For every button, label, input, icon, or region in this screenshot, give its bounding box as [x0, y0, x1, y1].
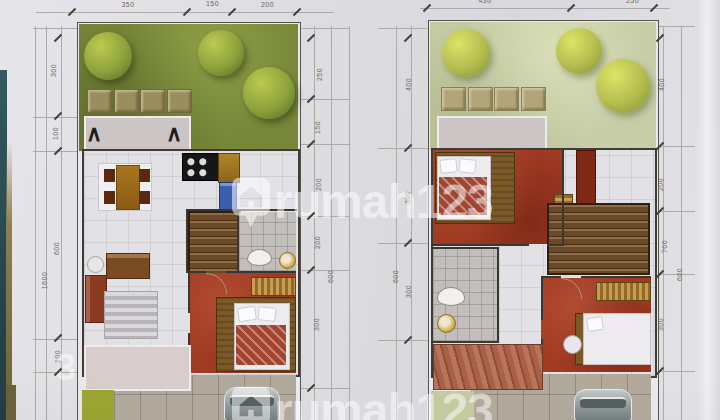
- wall: [188, 271, 206, 273]
- pillow: [586, 316, 604, 332]
- tree: [556, 28, 602, 74]
- lawn-patch: [82, 390, 114, 420]
- wall: [226, 271, 296, 273]
- dimension-label: 600: [327, 264, 336, 290]
- dimension-label: 700: [661, 234, 670, 260]
- desk: [596, 282, 651, 301]
- wall: [188, 271, 190, 313]
- wall: [186, 209, 188, 273]
- dimension-label: 430: [455, 0, 515, 4]
- dimension-label: 150: [185, 0, 240, 7]
- chair: [139, 191, 150, 204]
- dimension-label: 250: [316, 62, 325, 88]
- tree: [198, 30, 244, 76]
- dimension-line: [655, 26, 695, 27]
- dimension-label: 100: [52, 121, 61, 147]
- dimension-label: 250: [605, 0, 660, 4]
- photo-edge-strip: [6, 140, 12, 420]
- coffee-table: [87, 256, 104, 273]
- dimension-label: 300: [405, 279, 414, 305]
- kitchen-stove: [182, 153, 220, 181]
- car-windshield: [580, 397, 626, 408]
- rumah123-pin-icon: [232, 385, 270, 420]
- rumah123-pin-icon: [232, 176, 270, 231]
- tree: [84, 32, 132, 80]
- dimension-label: 300: [313, 312, 322, 338]
- dimension-label: 600: [676, 262, 685, 288]
- dimension-line: [298, 28, 350, 29]
- blanket: [236, 325, 286, 365]
- dimension-label: 150: [314, 115, 323, 141]
- tree: [243, 67, 295, 119]
- wardrobe: [251, 277, 296, 296]
- dimension-label: 200: [240, 1, 295, 8]
- chair: [139, 169, 150, 182]
- wall: [547, 244, 563, 246]
- stepping-stone: [167, 89, 192, 113]
- wall: [497, 247, 499, 343]
- rug: [104, 291, 158, 339]
- dimension-line: [35, 26, 36, 420]
- dimension-label: 300: [50, 58, 59, 84]
- dimension-line: [298, 99, 350, 100]
- dining-table: [116, 165, 140, 210]
- dimension-line: [298, 270, 350, 271]
- watermark-text: rumah123: [274, 175, 493, 229]
- wall: [541, 276, 543, 320]
- pillow: [257, 306, 276, 322]
- terrace: [84, 345, 191, 391]
- wall: [581, 276, 651, 278]
- dimension-line: [378, 28, 430, 29]
- floor-plan-photo: ∧ ∧: [0, 0, 720, 420]
- toilet: [247, 249, 272, 266]
- wall: [562, 150, 564, 246]
- dimension-label: 600: [53, 236, 62, 262]
- roof-ridge-mark: ∧: [86, 123, 102, 145]
- dimension-label: 300: [657, 312, 666, 338]
- dimension-line: [298, 144, 350, 145]
- wall: [541, 276, 561, 278]
- stepping-stone: [441, 87, 466, 111]
- wall: [431, 341, 498, 343]
- photo-edge-strip: [6, 385, 16, 420]
- sink: [279, 252, 296, 269]
- dimension-label: 400: [658, 72, 667, 98]
- dimension-line: [681, 26, 682, 420]
- dimension-label: 600: [392, 264, 401, 290]
- stepping-stone: [87, 89, 112, 113]
- dimension-line: [420, 8, 670, 9]
- toilet: [437, 287, 465, 306]
- watermark: rumah123: [228, 172, 508, 238]
- roof-ridge-mark: ∧: [166, 123, 182, 145]
- sink: [437, 314, 456, 333]
- stepping-stone: [114, 89, 139, 113]
- stepping-stone: [494, 87, 519, 111]
- wall: [431, 244, 529, 246]
- tree: [596, 59, 650, 113]
- chair: [104, 191, 115, 204]
- dimension-label: 350: [98, 1, 158, 8]
- stepping-stone: [521, 87, 546, 111]
- dimension-label: 200: [657, 172, 666, 198]
- dimension-line: [46, 26, 47, 420]
- chair: [104, 169, 115, 182]
- chair: [563, 335, 582, 354]
- patio: [437, 116, 547, 150]
- watermark: rumah123: [228, 381, 508, 420]
- car: [574, 389, 632, 420]
- dimension-line: [33, 28, 77, 29]
- paper-crease: [698, 0, 720, 420]
- dimension-label: 1600: [41, 268, 50, 294]
- wall: [431, 247, 498, 249]
- stepping-stone: [140, 89, 165, 113]
- dimension-label: 400: [405, 72, 414, 98]
- sofa: [106, 253, 150, 279]
- tree: [442, 29, 490, 77]
- pillow: [237, 306, 257, 322]
- stepping-stone: [468, 87, 493, 111]
